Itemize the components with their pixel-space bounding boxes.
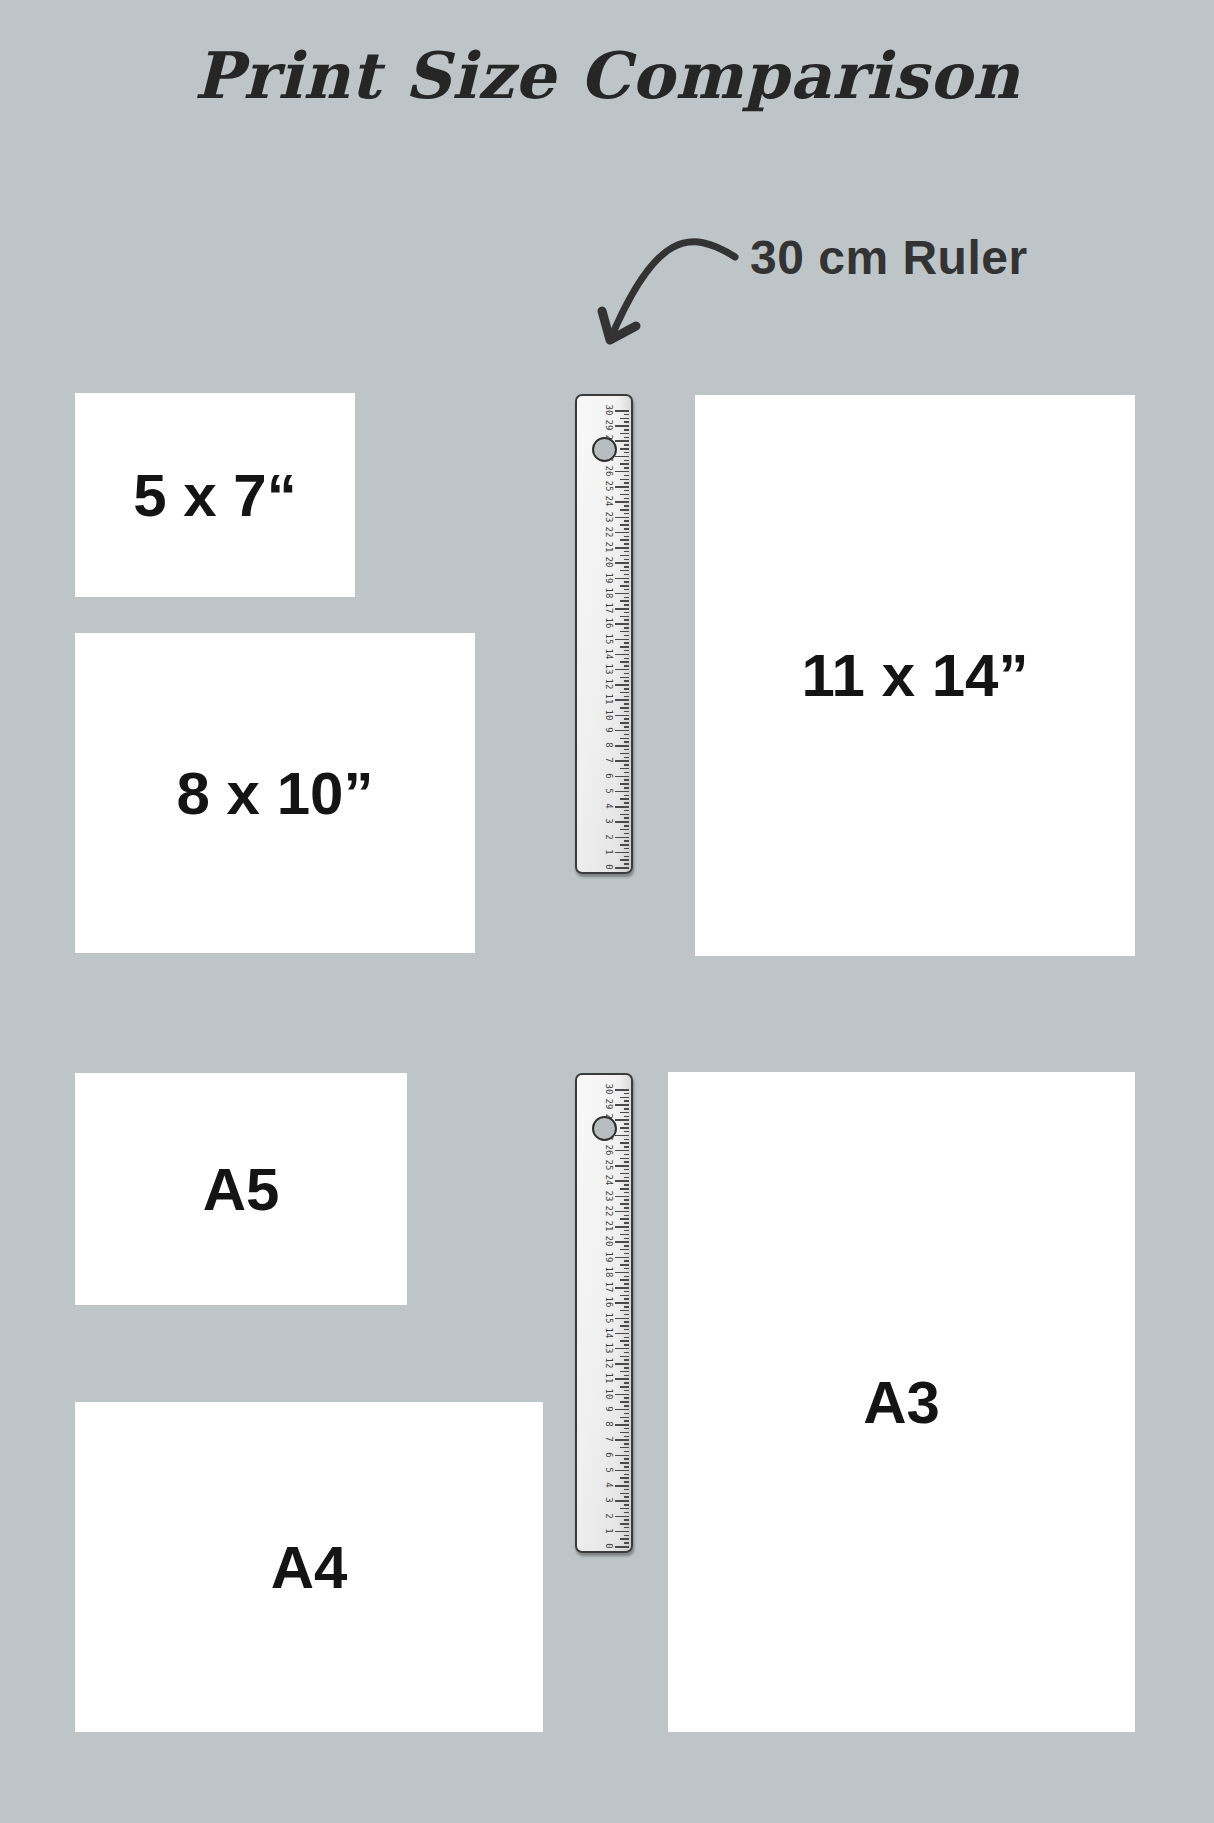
ruler-tick: [615, 1257, 629, 1259]
ruler-tick: [615, 623, 629, 625]
ruler-tick: [615, 821, 629, 823]
ruler-tick: [615, 562, 629, 564]
ruler-tick: [624, 665, 630, 667]
ruler-tick: [624, 1215, 630, 1217]
ruler-tick: [615, 837, 629, 839]
ruler-tick: [624, 1169, 630, 1171]
ruler-tick: [624, 1413, 630, 1415]
ruler-tick: [624, 1382, 630, 1384]
curved-arrow-icon: [560, 190, 790, 375]
ruler-tick: [620, 1523, 629, 1525]
ruler-tick: [620, 1310, 629, 1312]
ruler-tick: [620, 1493, 629, 1495]
ruler-tick: [615, 440, 629, 442]
ruler-tick: [620, 524, 629, 526]
ruler-tick: [624, 1100, 630, 1102]
ruler-tick: [620, 616, 629, 618]
ruler-tick: [615, 1546, 629, 1548]
ruler-tick: [620, 509, 629, 511]
ruler-tick: [615, 1287, 629, 1289]
ruler-tick: [624, 505, 630, 507]
ruler-tick: [620, 661, 629, 663]
ruler-tick: [624, 1291, 630, 1293]
ruler-tick: [624, 749, 630, 751]
ruler-tick: [624, 741, 630, 743]
ruler-tick: [615, 1516, 629, 1518]
ruler-tick: [624, 475, 630, 477]
ruler-tick: [624, 1268, 630, 1270]
ruler-tick: [615, 760, 629, 762]
ruler-tick: [624, 840, 630, 842]
ruler-tick: [624, 1131, 630, 1133]
ruler-tick: [615, 1226, 629, 1228]
ruler-tick: [624, 1276, 630, 1278]
ruler-tick: [624, 414, 630, 416]
ruler-tick: [615, 578, 629, 580]
ruler-tick: [615, 1363, 629, 1365]
ruler-tick: [624, 627, 630, 629]
ruler-tick: [624, 589, 630, 591]
ruler-tick: [624, 787, 630, 789]
ruler-tick: [615, 517, 629, 519]
ruler-tick: [624, 1436, 630, 1438]
ruler-tick: [624, 734, 630, 736]
ruler-tick: [624, 1390, 630, 1392]
ruler-tick: [624, 1451, 630, 1453]
ruler-tick: [624, 1230, 630, 1232]
ruler-tick: [624, 513, 630, 515]
ruler-tick: [620, 1356, 629, 1358]
ruler-tick: [624, 1283, 630, 1285]
ruler-tick: [620, 646, 629, 648]
ruler-tick: [620, 1158, 629, 1160]
ruler-tick: [624, 460, 630, 462]
ruler-tick: [620, 1508, 629, 1510]
ruler-tick: [624, 673, 630, 675]
ruler-tick: [624, 1337, 630, 1339]
ruler-tick: [624, 726, 630, 728]
ruler-tick: [624, 1192, 630, 1194]
ruler-tick: [620, 479, 629, 481]
ruler-tick: [615, 1485, 629, 1487]
ruler-tick: [624, 1184, 630, 1186]
ruler-tick: [624, 612, 630, 614]
ruler-tick: [624, 1093, 630, 1095]
ruler-tick: [624, 1146, 630, 1148]
ruler-tick: [624, 1352, 630, 1354]
ruler-tick: [620, 1325, 629, 1327]
ruler-tick: [624, 1405, 630, 1407]
ruler-tick: [624, 1519, 630, 1521]
ruler-tick: [620, 753, 629, 755]
ruler-tick: [620, 1264, 629, 1266]
paper-a5: A5: [75, 1073, 407, 1305]
ruler-tick: [615, 1089, 629, 1091]
ruler-tick: [615, 1302, 629, 1304]
paper-a3: A3: [668, 1072, 1135, 1732]
ruler-tick: [615, 1104, 629, 1106]
ruler-tick: [615, 684, 629, 686]
ruler-tick: [620, 1142, 629, 1144]
ruler-tick: [624, 1161, 630, 1163]
ruler-tick: [615, 1180, 629, 1182]
ruler-tick: [615, 456, 629, 458]
ruler-tick: [615, 699, 629, 701]
ruler-tick: [620, 1340, 629, 1342]
ruler-tick: [624, 779, 630, 781]
ruler-tick: [624, 498, 630, 500]
ruler-tick: [620, 844, 629, 846]
ruler-tick: [615, 1318, 629, 1320]
ruler-tick: [624, 658, 630, 660]
ruler-tick: [615, 1135, 629, 1137]
ruler-tick: [624, 703, 630, 705]
ruler-tick: [624, 1306, 630, 1308]
ruler-tick: [624, 863, 630, 865]
ruler-tick: [620, 1477, 629, 1479]
ruler-tick: [615, 1196, 629, 1198]
ruler-tick: [624, 1253, 630, 1255]
ruler-tick: [624, 566, 630, 568]
ruler-tick: [615, 1424, 629, 1426]
ruler-tick: [624, 1474, 630, 1476]
ruler-tick: [615, 486, 629, 488]
ruler-tick: [624, 1344, 630, 1346]
ruler-tick: [624, 452, 630, 454]
ruler-tick: [620, 1249, 629, 1251]
ruler-tick: [624, 1329, 630, 1331]
ruler-tick: [615, 1439, 629, 1441]
ruler-tick: [620, 600, 629, 602]
page-title: Print Size Comparison: [0, 38, 1214, 113]
ruler-tick: [624, 444, 630, 446]
ruler-tick: [624, 1512, 630, 1514]
ruler-tick: [624, 856, 630, 858]
ruler-tick: [615, 410, 629, 412]
ruler-tick: [615, 852, 629, 854]
ruler-tick: [624, 757, 630, 759]
ruler-tick: [624, 1504, 630, 1506]
ruler-tick: [624, 1367, 630, 1369]
ruler-tick: [624, 574, 630, 576]
ruler-tick: [620, 1295, 629, 1297]
ruler-tick: [624, 1428, 630, 1430]
ruler-number-30: 30: [604, 400, 614, 420]
ruler-tick: [615, 1165, 629, 1167]
ruler-tick: [624, 1489, 630, 1491]
ruler-tick: [624, 817, 630, 819]
ruler-tick: [624, 421, 630, 423]
ruler-tick: [624, 1154, 630, 1156]
ruler-tick: [615, 654, 629, 656]
ruler-tick: [624, 642, 630, 644]
ruler-tick: [624, 1116, 630, 1118]
ruler-tick: [615, 1455, 629, 1457]
ruler-tick: [620, 1538, 629, 1540]
ruler-tick: [620, 783, 629, 785]
ruler-tick: [624, 1238, 630, 1240]
ruler-annotation-label: 30 cm Ruler: [750, 230, 1028, 285]
ruler-tick: [624, 1222, 630, 1224]
ruler-tick: [615, 1272, 629, 1274]
ruler-tick: [624, 551, 630, 553]
ruler-tick: [620, 585, 629, 587]
ruler-tick: [615, 1378, 629, 1380]
ruler-tick: [624, 1199, 630, 1201]
paper-label-8x10: 8 x 10”: [177, 759, 374, 828]
ruler-tick: [624, 1542, 630, 1544]
ruler-tick: [624, 1458, 630, 1460]
ruler-tick: [624, 1321, 630, 1323]
ruler-tick: [615, 1150, 629, 1152]
ruler-tick: [624, 1496, 630, 1498]
ruler-tick: [615, 776, 629, 778]
ruler-hole: [592, 1116, 617, 1141]
ruler-tick: [615, 1333, 629, 1335]
ruler-tick: [620, 707, 629, 709]
ruler-tick: [615, 532, 629, 534]
ruler-tick: [620, 539, 629, 541]
ruler-tick: [624, 764, 630, 766]
ruler-tick: [620, 829, 629, 831]
ruler-tick: [620, 768, 629, 770]
ruler-tick: [620, 1279, 629, 1281]
ruler-tick: [624, 680, 630, 682]
paper-a4: A4: [75, 1402, 543, 1732]
ruler-tick: [620, 1097, 629, 1099]
ruler-tick: [615, 425, 629, 427]
ruler-tick: [620, 1188, 629, 1190]
ruler-tick: [615, 806, 629, 808]
ruler-tick: [620, 1386, 629, 1388]
ruler-tick: [620, 738, 629, 740]
ruler-tick: [624, 520, 630, 522]
ruler-tick: [624, 772, 630, 774]
ruler-tick: [615, 730, 629, 732]
ruler-tick: [624, 581, 630, 583]
ruler-tick: [615, 1500, 629, 1502]
ruler-tick: [615, 501, 629, 503]
ruler-tick: [620, 1112, 629, 1114]
paper-label-a4: A4: [271, 1533, 348, 1602]
ruler-tick: [624, 1443, 630, 1445]
ruler-tick: [624, 1314, 630, 1316]
ruler-tick: [624, 825, 630, 827]
ruler-tick: [624, 1466, 630, 1468]
ruler-tick: [624, 1420, 630, 1422]
ruler-tick: [615, 669, 629, 671]
ruler-tick: [624, 1260, 630, 1262]
ruler-tick: [620, 555, 629, 557]
ruler-top-30cm: 0123456789101112131415161718192021222324…: [575, 394, 633, 874]
ruler-tick: [624, 1481, 630, 1483]
ruler-tick: [624, 650, 630, 652]
ruler-tick: [620, 1173, 629, 1175]
ruler-tick: [620, 1218, 629, 1220]
ruler-tick: [624, 1298, 630, 1300]
ruler-tick: [624, 711, 630, 713]
ruler-tick: [620, 677, 629, 679]
ruler-tick: [624, 490, 630, 492]
ruler-tick: [615, 745, 629, 747]
ruler-tick: [624, 597, 630, 599]
ruler-tick: [615, 867, 629, 869]
ruler-tick: [615, 1241, 629, 1243]
ruler-tick: [624, 1207, 630, 1209]
ruler-tick: [624, 1535, 630, 1537]
ruler-tick: [624, 1139, 630, 1141]
ruler-tick: [620, 1462, 629, 1464]
ruler-tick: [615, 547, 629, 549]
ruler-tick: [615, 1348, 629, 1350]
ruler-tick: [620, 859, 629, 861]
paper-5x7: 5 x 7“: [75, 393, 355, 597]
ruler-tick: [615, 608, 629, 610]
ruler-tick: [615, 1531, 629, 1533]
ruler-tick: [624, 536, 630, 538]
paper-label-11x14: 11 x 14”: [802, 641, 1029, 710]
paper-label-5x7: 5 x 7“: [133, 461, 296, 530]
ruler-tick: [624, 1123, 630, 1125]
ruler-tick: [620, 1371, 629, 1373]
ruler-tick: [624, 1375, 630, 1377]
ruler-tick: [624, 559, 630, 561]
ruler-tick: [624, 696, 630, 698]
ruler-bottom-30cm: 0123456789101112131415161718192021222324…: [575, 1073, 633, 1553]
ruler-number-30: 30: [604, 1079, 614, 1099]
ruler-tick: [620, 814, 629, 816]
ruler-tick: [624, 1397, 630, 1399]
ruler-tick: [620, 631, 629, 633]
ruler-tick: [624, 810, 630, 812]
ruler-tick: [620, 1401, 629, 1403]
ruler-tick: [624, 688, 630, 690]
ruler-tick: [620, 798, 629, 800]
ruler-tick: [624, 1527, 630, 1529]
ruler-tick: [620, 1432, 629, 1434]
ruler-tick: [624, 635, 630, 637]
ruler-tick: [620, 570, 629, 572]
ruler-tick: [615, 1470, 629, 1472]
ruler-tick: [620, 722, 629, 724]
ruler-tick: [624, 1359, 630, 1361]
ruler-tick: [620, 1203, 629, 1205]
ruler-tick: [615, 593, 629, 595]
ruler-tick: [615, 1119, 629, 1121]
ruler-tick: [620, 448, 629, 450]
ruler-tick: [620, 433, 629, 435]
ruler-tick: [620, 1127, 629, 1129]
ruler-tick: [624, 848, 630, 850]
ruler-tick: [624, 604, 630, 606]
ruler-hole: [592, 437, 617, 462]
print-size-comparison-diagram: Print Size Comparison 30 cm Ruler 5 x 7“…: [0, 0, 1214, 1823]
paper-8x10: 8 x 10”: [75, 633, 475, 953]
ruler-tick: [615, 1211, 629, 1213]
ruler-tick: [624, 429, 630, 431]
ruler-tick: [620, 463, 629, 465]
ruler-tick: [620, 692, 629, 694]
ruler-tick: [620, 418, 629, 420]
ruler-tick: [624, 437, 630, 439]
ruler-tick: [624, 1245, 630, 1247]
ruler-tick: [620, 1447, 629, 1449]
ruler-tick: [624, 543, 630, 545]
paper-label-a3: A3: [863, 1368, 940, 1437]
ruler-tick: [624, 1108, 630, 1110]
ruler-tick: [615, 791, 629, 793]
ruler-tick: [624, 528, 630, 530]
paper-label-a5: A5: [203, 1155, 280, 1224]
ruler-tick: [620, 1234, 629, 1236]
ruler-tick: [624, 467, 630, 469]
ruler-tick: [620, 494, 629, 496]
ruler-tick: [615, 1409, 629, 1411]
ruler-tick: [615, 715, 629, 717]
ruler-tick: [615, 639, 629, 641]
ruler-tick: [624, 833, 630, 835]
ruler-tick: [624, 795, 630, 797]
paper-11x14: 11 x 14”: [695, 395, 1135, 956]
ruler-tick: [624, 802, 630, 804]
ruler-tick: [615, 471, 629, 473]
ruler-tick: [624, 1177, 630, 1179]
ruler-tick: [624, 718, 630, 720]
ruler-tick: [624, 482, 630, 484]
ruler-tick: [615, 1394, 629, 1396]
ruler-tick: [620, 1417, 629, 1419]
ruler-tick: [624, 619, 630, 621]
